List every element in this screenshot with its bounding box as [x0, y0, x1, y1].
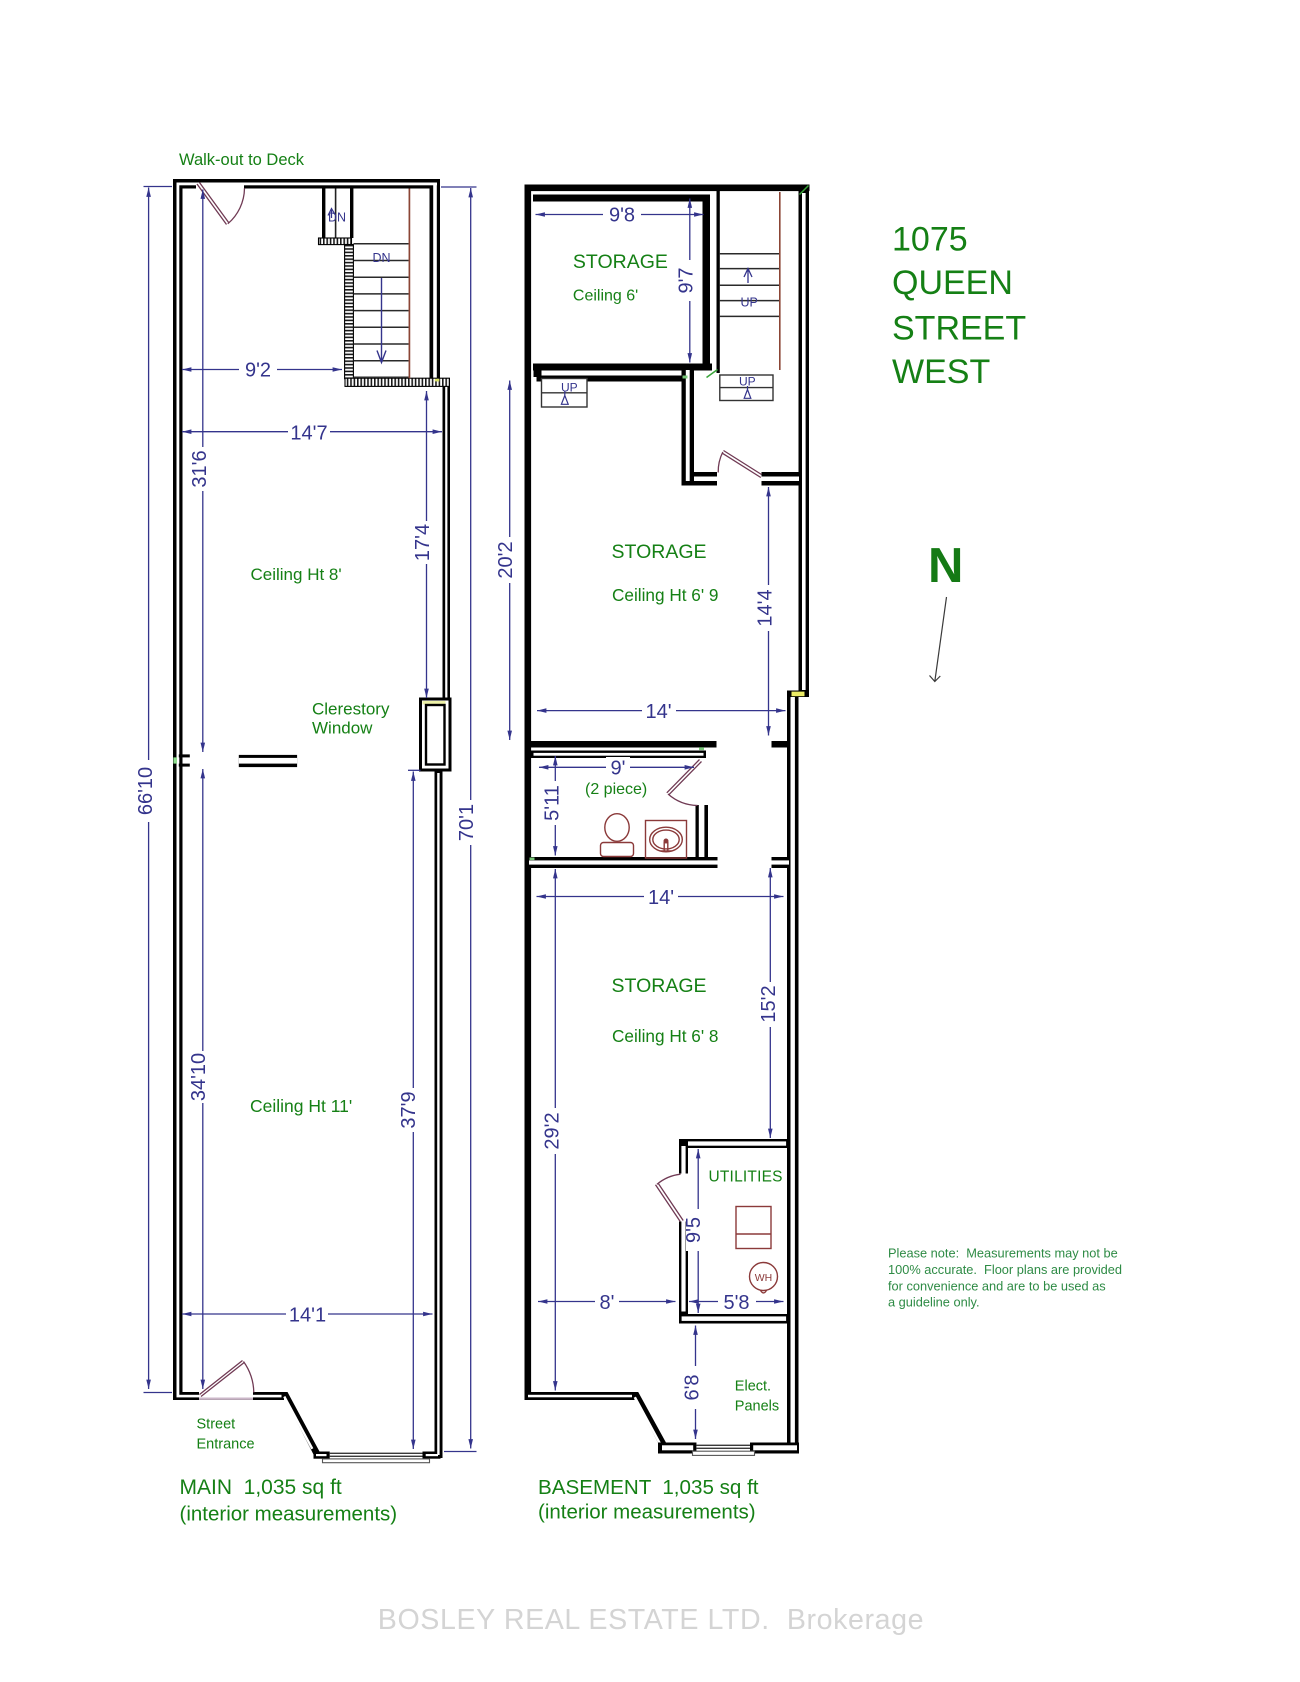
- svg-text:14'1: 14'1: [289, 1305, 326, 1327]
- svg-text:14': 14': [648, 887, 674, 909]
- svg-text:N: N: [928, 539, 963, 593]
- svg-text:1075: 1075: [892, 221, 968, 259]
- svg-text:Ceiling Ht 6' 8: Ceiling Ht 6' 8: [612, 1026, 718, 1046]
- svg-text:DN: DN: [373, 251, 391, 265]
- svg-text:Walk-out to Deck: Walk-out to Deck: [179, 151, 305, 169]
- svg-text:5'8: 5'8: [723, 1292, 749, 1314]
- svg-text:14'7: 14'7: [290, 423, 327, 445]
- svg-text:STORAGE: STORAGE: [612, 541, 707, 563]
- svg-text:14'4: 14'4: [754, 589, 776, 626]
- svg-text:9'2: 9'2: [245, 360, 271, 382]
- svg-text:UP: UP: [741, 296, 758, 310]
- svg-text:BASEMENT 1,035 sq ft: BASEMENT 1,035 sq ft: [538, 1476, 759, 1499]
- svg-text:Please note: Measurements may: Please note: Measurements may not be: [888, 1246, 1118, 1261]
- svg-text:WEST: WEST: [892, 353, 990, 391]
- svg-text:WH: WH: [755, 1272, 773, 1284]
- svg-text:34'10: 34'10: [188, 1053, 210, 1101]
- svg-text:Ceiling Ht 6' 9: Ceiling Ht 6' 9: [612, 585, 718, 605]
- svg-text:MAIN 1,035 sq ft: MAIN 1,035 sq ft: [180, 1476, 342, 1499]
- svg-text:Ceiling 6': Ceiling 6': [573, 288, 638, 305]
- svg-text:Window: Window: [312, 719, 373, 738]
- svg-text:5'11: 5'11: [541, 785, 563, 821]
- svg-text:29'2: 29'2: [541, 1112, 563, 1149]
- svg-text:9': 9': [611, 758, 626, 780]
- svg-text:(2 piece): (2 piece): [585, 781, 647, 798]
- svg-text:QUEEN: QUEEN: [892, 264, 1013, 302]
- svg-text:66'10: 66'10: [135, 767, 157, 815]
- svg-text:9'5: 9'5: [683, 1217, 705, 1243]
- svg-text:STORAGE: STORAGE: [573, 251, 668, 273]
- svg-text:8': 8': [600, 1292, 615, 1314]
- svg-text:a guideline only.: a guideline only.: [888, 1295, 980, 1310]
- svg-text:9'8: 9'8: [609, 205, 635, 227]
- svg-text:Panels: Panels: [735, 1399, 779, 1415]
- svg-text:DN: DN: [328, 211, 346, 225]
- svg-text:UP: UP: [561, 381, 578, 395]
- svg-text:70'1: 70'1: [456, 804, 478, 841]
- svg-text:Clerestory: Clerestory: [312, 700, 390, 719]
- svg-text:BOSLEY REAL ESTATE LTD. Broke: BOSLEY REAL ESTATE LTD. Brokerage: [378, 1604, 924, 1636]
- svg-text:for convenience and are to be: for convenience and are to be used as: [888, 1278, 1106, 1293]
- svg-text:9'7: 9'7: [675, 267, 697, 293]
- svg-text:(interior measurements): (interior measurements): [538, 1501, 756, 1524]
- svg-text:37'9: 37'9: [398, 1091, 420, 1128]
- svg-text:20'2: 20'2: [495, 541, 517, 578]
- svg-text:Ceiling Ht 8': Ceiling Ht 8': [251, 565, 342, 584]
- svg-text:100% accurate. Floor plans ar: 100% accurate. Floor plans are provided: [888, 1262, 1122, 1277]
- svg-text:Entrance: Entrance: [197, 1437, 255, 1453]
- svg-text:Ceiling Ht 11': Ceiling Ht 11': [250, 1096, 352, 1116]
- svg-text:UTILITIES: UTILITIES: [709, 1169, 783, 1186]
- svg-text:(interior measurements): (interior measurements): [180, 1503, 398, 1526]
- svg-text:6'8: 6'8: [681, 1374, 703, 1400]
- svg-text:STORAGE: STORAGE: [612, 975, 707, 997]
- svg-text:15'2: 15'2: [758, 985, 780, 1022]
- svg-text:31'6: 31'6: [189, 450, 211, 487]
- svg-text:Street: Street: [197, 1417, 236, 1433]
- svg-text:14': 14': [645, 701, 671, 723]
- svg-text:17'4: 17'4: [412, 524, 434, 561]
- svg-text:Elect.: Elect.: [735, 1379, 771, 1395]
- svg-text:STREET: STREET: [892, 310, 1026, 348]
